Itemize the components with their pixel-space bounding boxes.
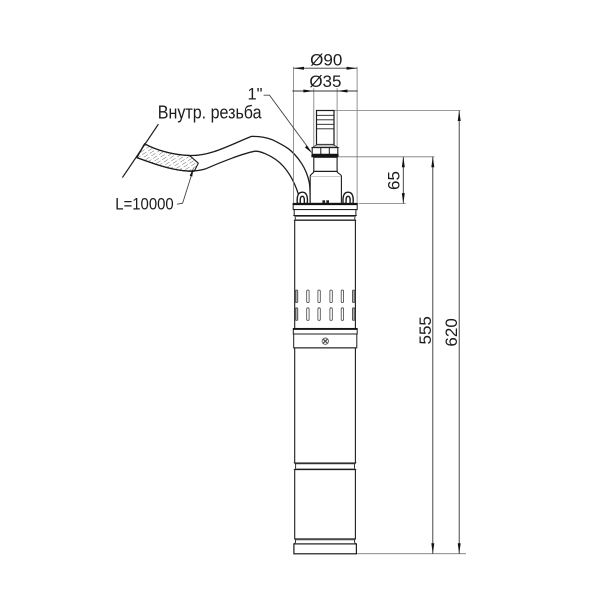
svg-text:Ø90: Ø90 (310, 50, 342, 69)
svg-text:620: 620 (442, 318, 461, 346)
svg-text:L=10000: L=10000 (115, 196, 174, 214)
svg-text:Внутр. резьба: Внутр. резьба (158, 102, 262, 123)
svg-text:Ø35: Ø35 (309, 72, 341, 91)
svg-text:555: 555 (416, 316, 435, 344)
svg-text:65: 65 (385, 171, 404, 190)
